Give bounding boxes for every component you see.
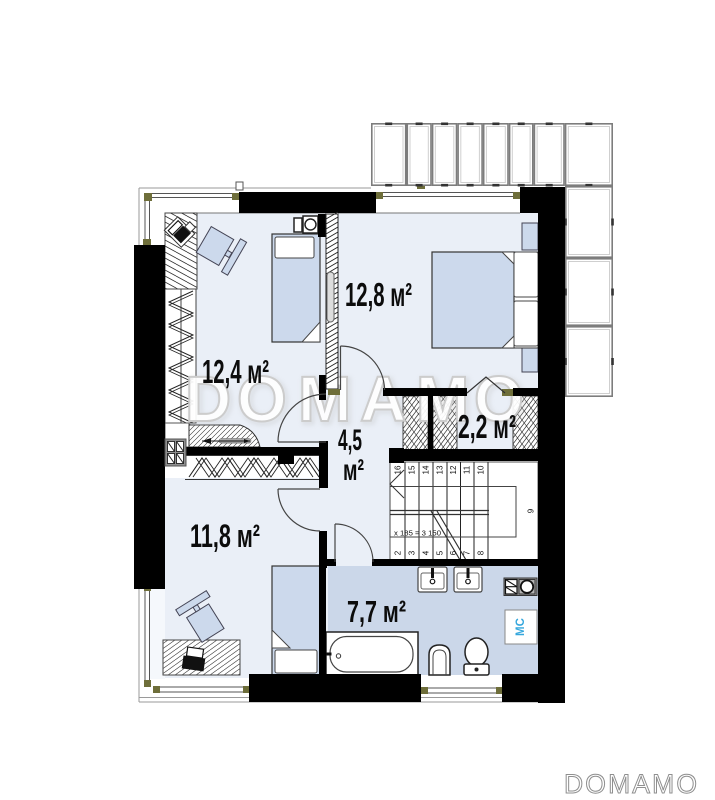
svg-text:7: 7 [463, 550, 472, 555]
svg-text:9: 9 [527, 508, 536, 513]
svg-text:МС: МС [515, 618, 527, 636]
svg-text:6: 6 [449, 550, 458, 555]
svg-text:12: 12 [449, 465, 458, 474]
svg-text:DOMAMO: DOMAMO [564, 769, 697, 799]
svg-text:4: 4 [422, 550, 431, 555]
svg-text:10: 10 [477, 465, 486, 474]
svg-text:11,8 м²: 11,8 м² [190, 518, 260, 554]
svg-text:16: 16 [394, 465, 403, 474]
svg-text:2,2 м²: 2,2 м² [458, 408, 516, 445]
svg-text:8: 8 [477, 550, 486, 555]
svg-text:5: 5 [436, 550, 445, 555]
svg-text:12,8 м²: 12,8 м² [345, 276, 412, 313]
svg-text:2: 2 [394, 550, 403, 555]
svg-text:x 185 = 3 150: x 185 = 3 150 [394, 529, 441, 538]
svg-text:4,5: 4,5 [338, 424, 362, 457]
svg-text:7,7 м²: 7,7 м² [347, 594, 406, 629]
svg-text:11: 11 [463, 465, 472, 474]
svg-text:3: 3 [408, 550, 417, 555]
svg-text:12,4 м²: 12,4 м² [202, 353, 269, 390]
svg-text:м²: м² [343, 454, 364, 487]
svg-text:14: 14 [422, 465, 431, 474]
svg-text:13: 13 [436, 465, 445, 474]
svg-text:15: 15 [408, 465, 417, 474]
